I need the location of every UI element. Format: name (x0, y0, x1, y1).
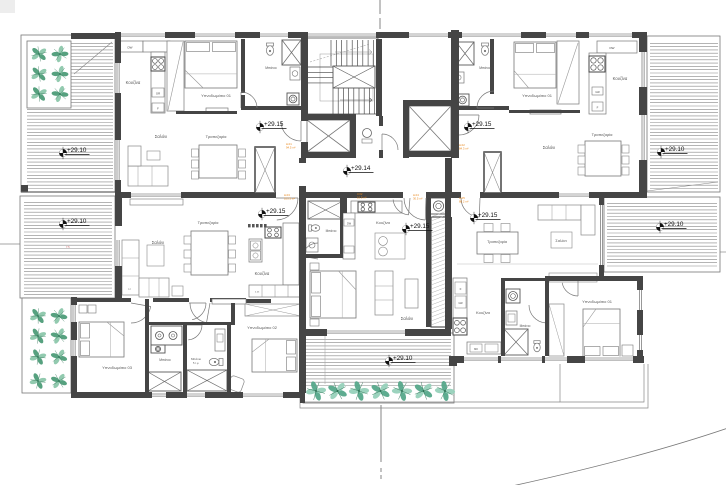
svg-text:Μπάνιο: Μπάνιο (520, 324, 531, 328)
svg-text:Σαλόνι: Σαλόνι (401, 316, 413, 321)
svg-text:GR: GR (595, 90, 599, 94)
svg-text:Τραπεζαρία: Τραπεζαρία (206, 134, 228, 139)
svg-text:Κουζίνα: Κουζίνα (376, 220, 391, 225)
svg-text:84.3 m²: 84.3 m² (459, 147, 469, 151)
svg-text:+29.10: +29.10 (67, 147, 87, 154)
svg-text:Υπνοδωμάτιο 03: Υπνοδωμάτιο 03 (102, 365, 133, 370)
svg-text:88.2 m²: 88.2 m² (459, 200, 469, 204)
svg-text:+29.10: +29.10 (67, 218, 87, 225)
svg-text:DW: DW (610, 46, 615, 50)
svg-text:+29.15: +29.15 (410, 223, 430, 230)
svg-text:+29.15: +29.15 (266, 208, 286, 215)
svg-text:103.5 m²: 103.5 m² (284, 197, 295, 201)
svg-text:Υπνοδωμάτιο 01: Υπνοδωμάτιο 01 (522, 93, 553, 98)
svg-text:GR: GR (156, 92, 160, 96)
svg-text:Σαλόνι: Σαλόνι (152, 240, 164, 245)
svg-text:Κουζίνα: Κουζίνα (476, 310, 491, 315)
svg-text:+29.10: +29.10 (393, 355, 413, 362)
svg-text:+29.15: +29.15 (472, 121, 492, 128)
svg-text:Τραπεζαρία: Τραπεζαρία (198, 220, 220, 225)
svg-text:Μπάνιο: Μπάνιο (479, 66, 491, 70)
svg-text:Σαλόνι: Σαλόνι (555, 239, 566, 243)
svg-text:+29.14: +29.14 (351, 165, 371, 172)
svg-text:Κουζίνα: Κουζίνα (255, 271, 270, 276)
svg-text:+29.10: +29.10 (664, 221, 684, 228)
svg-text:Μπάνιο: Μπάνιο (159, 358, 171, 362)
svg-text:Τραπεζαρία: Τραπεζαρία (487, 240, 508, 244)
svg-text:GR: GR (458, 301, 462, 305)
svg-text:10.5 m²: 10.5 m² (357, 196, 367, 200)
svg-text:Υπνοδωμάτιο 02: Υπνοδωμάτιο 02 (247, 325, 278, 330)
svg-text:Κουζίνα: Κουζίνα (613, 76, 628, 81)
svg-text:7.5: 7.5 (66, 245, 70, 249)
svg-text:+29.15: +29.15 (264, 121, 284, 128)
svg-text:F: F (157, 107, 159, 111)
svg-text:30.5 m²: 30.5 m² (413, 197, 423, 201)
svg-text:Τραπεζαρία: Τραπεζαρία (592, 132, 614, 137)
svg-text:Μπάνιο: Μπάνιο (265, 66, 277, 70)
svg-text:Κουζίνα: Κουζίνα (126, 80, 141, 85)
svg-text:+29.15: +29.15 (478, 212, 498, 219)
svg-text:Μπάνιο: Μπάνιο (191, 357, 201, 361)
svg-text:Υπνοδωμάτιο 01: Υπνοδωμάτιο 01 (201, 93, 232, 98)
svg-text:Υπνοδωμάτιο 01: Υπνοδωμάτιο 01 (582, 299, 613, 304)
svg-text:Σαλόνι: Σαλόνι (543, 145, 555, 150)
svg-text:DW: DW (128, 46, 133, 50)
svg-text:94.5 m²: 94.5 m² (286, 146, 296, 150)
svg-text:MO: MO (474, 348, 478, 351)
svg-text:5 τ.μ.: 5 τ.μ. (193, 361, 199, 365)
svg-text:Σαλόνι: Σαλόνι (155, 134, 167, 139)
svg-text:+29.10: +29.10 (665, 146, 685, 153)
svg-text:F: F (460, 287, 462, 291)
svg-text:Μπάνιο: Μπάνιο (326, 229, 337, 233)
svg-text:F: F (597, 106, 599, 110)
